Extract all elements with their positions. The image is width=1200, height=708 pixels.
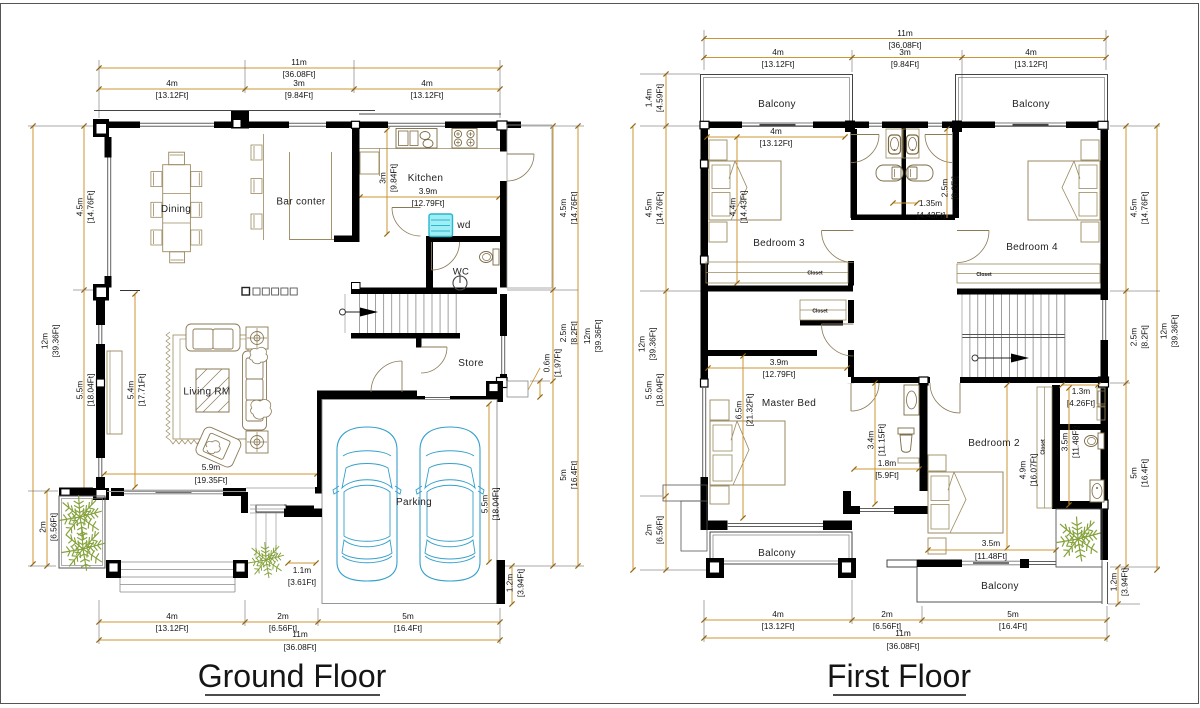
svg-text:[18.04Ft]: [18.04Ft] [86, 374, 96, 407]
svg-text:1.1m: 1.1m [293, 565, 312, 575]
svg-text:11m: 11m [895, 628, 911, 638]
svg-text:[9.84Ft]: [9.84Ft] [891, 59, 919, 69]
svg-text:[13.12Ft]: [13.12Ft] [156, 90, 189, 100]
svg-text:[14.76Ft]: [14.76Ft] [1140, 192, 1150, 225]
svg-text:1.8m: 1.8m [878, 458, 897, 468]
svg-text:3.9m: 3.9m [419, 186, 438, 196]
svg-text:Closet: Closet [1041, 439, 1047, 455]
svg-text:Closet: Closet [812, 309, 828, 315]
svg-text:11m: 11m [897, 28, 913, 38]
svg-text:[13.12Ft]: [13.12Ft] [156, 623, 189, 633]
svg-text:5m: 5m [1007, 609, 1019, 619]
svg-text:4.5m: 4.5m [558, 199, 568, 218]
svg-text:Balcony: Balcony [758, 548, 796, 559]
svg-text:1.2m: 1.2m [505, 574, 515, 593]
svg-text:[14.76Ft]: [14.76Ft] [86, 191, 96, 224]
svg-text:3m: 3m [899, 47, 911, 57]
svg-text:[16.07Ft]: [16.07Ft] [1029, 454, 1039, 487]
svg-text:[4.43Ft]: [4.43Ft] [917, 210, 945, 220]
svg-text:4.5m: 4.5m [75, 198, 85, 217]
svg-text:[39.36Ft]: [39.36Ft] [51, 325, 61, 358]
svg-text:[36.08Ft]: [36.08Ft] [284, 642, 317, 652]
svg-text:3.5m: 3.5m [1060, 433, 1070, 452]
svg-text:First Floor: First Floor [827, 658, 971, 694]
svg-text:[9.84Ft]: [9.84Ft] [285, 90, 313, 100]
svg-text:Bar conter: Bar conter [276, 197, 326, 208]
svg-text:2.5m: 2.5m [1129, 328, 1139, 347]
svg-text:[11.15Ft]: [11.15Ft] [877, 424, 887, 456]
svg-text:6.5m: 6.5m [734, 401, 744, 420]
svg-text:2m: 2m [38, 521, 48, 533]
svg-text:12m: 12m [637, 336, 647, 352]
svg-text:Balcony: Balcony [758, 99, 796, 110]
svg-text:5.5m: 5.5m [480, 495, 490, 514]
svg-text:[14.76Ft]: [14.76Ft] [655, 192, 665, 225]
svg-text:1.2m: 1.2m [1109, 573, 1119, 592]
svg-text:[4.26Ft]: [4.26Ft] [1067, 398, 1095, 408]
svg-text:5m: 5m [558, 469, 568, 481]
svg-text:[12.79Ft]: [12.79Ft] [412, 198, 445, 208]
svg-text:wd: wd [456, 220, 470, 231]
svg-text:[8.2Ft]: [8.2Ft] [950, 176, 960, 200]
svg-text:[21.32Ft]: [21.32Ft] [745, 394, 755, 427]
svg-text:[11.48Ft]: [11.48Ft] [975, 551, 1007, 561]
svg-text:[39.36Ft]: [39.36Ft] [593, 320, 603, 353]
svg-text:0.6m: 0.6m [542, 354, 552, 373]
svg-text:4m: 4m [166, 78, 178, 88]
svg-text:[39.36Ft]: [39.36Ft] [1170, 315, 1180, 348]
svg-text:[11.48Ft]: [11.48Ft] [1071, 426, 1081, 458]
svg-text:[13.12Ft]: [13.12Ft] [411, 90, 444, 100]
svg-text:[13.12Ft]: [13.12Ft] [762, 59, 795, 69]
svg-text:[18.04Ft]: [18.04Ft] [655, 374, 665, 407]
svg-text:4m: 4m [1025, 47, 1037, 57]
svg-text:Parking: Parking [396, 497, 432, 508]
svg-text:3.4m: 3.4m [866, 431, 876, 450]
svg-text:[12.79Ft]: [12.79Ft] [763, 369, 796, 379]
svg-text:2m: 2m [644, 524, 654, 536]
svg-text:3.5m: 3.5m [982, 538, 1001, 548]
svg-text:Ground Floor: Ground Floor [198, 658, 387, 694]
svg-text:[18.04Ft]: [18.04Ft] [491, 488, 501, 521]
svg-text:[36.08Ft]: [36.08Ft] [887, 641, 920, 651]
svg-text:4m: 4m [770, 126, 782, 136]
svg-text:Bedroom 3: Bedroom 3 [753, 238, 805, 249]
svg-text:1.35m: 1.35m [919, 198, 942, 208]
svg-text:4.5m: 4.5m [1129, 199, 1139, 218]
svg-text:[14.43Ft]: [14.43Ft] [739, 191, 749, 224]
svg-text:5.5m: 5.5m [644, 381, 654, 400]
svg-text:[9.84Ft]: [9.84Ft] [389, 164, 399, 192]
svg-text:[19.35Ft]: [19.35Ft] [195, 475, 228, 485]
svg-text:Dining: Dining [161, 204, 191, 215]
svg-text:1.3m: 1.3m [1072, 386, 1091, 396]
svg-text:[16.4Ft]: [16.4Ft] [1140, 459, 1150, 487]
svg-text:Bedroom 2: Bedroom 2 [968, 438, 1020, 449]
svg-text:11m: 11m [291, 57, 307, 67]
svg-text:4.4m: 4.4m [728, 198, 738, 217]
svg-text:4m: 4m [772, 609, 784, 619]
svg-text:[13.12Ft]: [13.12Ft] [760, 138, 793, 148]
svg-text:1.4m: 1.4m [644, 89, 654, 108]
svg-text:[39.36Ft]: [39.36Ft] [648, 328, 658, 361]
svg-text:2.5m: 2.5m [940, 179, 950, 198]
svg-text:4m: 4m [421, 78, 433, 88]
svg-text:[5.9Ft]: [5.9Ft] [875, 470, 899, 480]
svg-text:[6.56Ft]: [6.56Ft] [49, 513, 59, 541]
svg-text:Kitchen: Kitchen [408, 173, 443, 184]
svg-text:Master Bed: Master Bed [762, 398, 816, 409]
svg-text:2m: 2m [277, 611, 289, 621]
svg-text:[3.94Ft]: [3.94Ft] [1120, 568, 1130, 596]
svg-text:[16.4Ft]: [16.4Ft] [999, 621, 1027, 631]
svg-text:[13.12Ft]: [13.12Ft] [1015, 59, 1048, 69]
svg-text:4.9m: 4.9m [1018, 461, 1028, 480]
svg-text:5.5m: 5.5m [75, 381, 85, 400]
svg-text:Living RM: Living RM [183, 387, 230, 398]
svg-text:[4.59Ft]: [4.59Ft] [655, 84, 665, 112]
svg-text:5m: 5m [1129, 467, 1139, 479]
svg-text:[16.4Ft]: [16.4Ft] [394, 623, 422, 633]
svg-text:11m: 11m [292, 629, 308, 639]
svg-text:12m: 12m [40, 333, 50, 349]
svg-text:[3.61Ft]: [3.61Ft] [288, 577, 316, 587]
svg-text:[8.2Ft]: [8.2Ft] [1140, 325, 1150, 349]
svg-text:[13.12Ft]: [13.12Ft] [762, 621, 795, 631]
svg-text:Closet: Closet [976, 272, 992, 278]
svg-text:3.9m: 3.9m [770, 357, 789, 367]
svg-text:12m: 12m [1159, 323, 1169, 339]
svg-text:2m: 2m [881, 609, 893, 619]
svg-text:4m: 4m [166, 611, 178, 621]
svg-text:5m: 5m [402, 611, 414, 621]
svg-text:Bedroom 4: Bedroom 4 [1006, 242, 1058, 253]
svg-text:2.5m: 2.5m [558, 324, 568, 343]
svg-text:4.5m: 4.5m [644, 199, 654, 218]
svg-text:[6.56Ft]: [6.56Ft] [655, 516, 665, 544]
svg-text:[17.71Ft]: [17.71Ft] [137, 374, 147, 407]
svg-text:Store: Store [458, 358, 484, 369]
svg-text:[3.94Ft]: [3.94Ft] [516, 569, 526, 597]
svg-text:Balcony: Balcony [1012, 99, 1050, 110]
svg-text:12m: 12m [582, 328, 592, 344]
svg-text:Balcony: Balcony [981, 581, 1019, 592]
svg-text:[1.97Ft]: [1.97Ft] [553, 349, 563, 377]
svg-text:3m: 3m [293, 78, 305, 88]
svg-text:WC: WC [453, 267, 469, 278]
svg-text:4m: 4m [772, 47, 784, 57]
svg-text:Closet: Closet [807, 271, 823, 277]
svg-text:5.4m: 5.4m [126, 381, 136, 400]
